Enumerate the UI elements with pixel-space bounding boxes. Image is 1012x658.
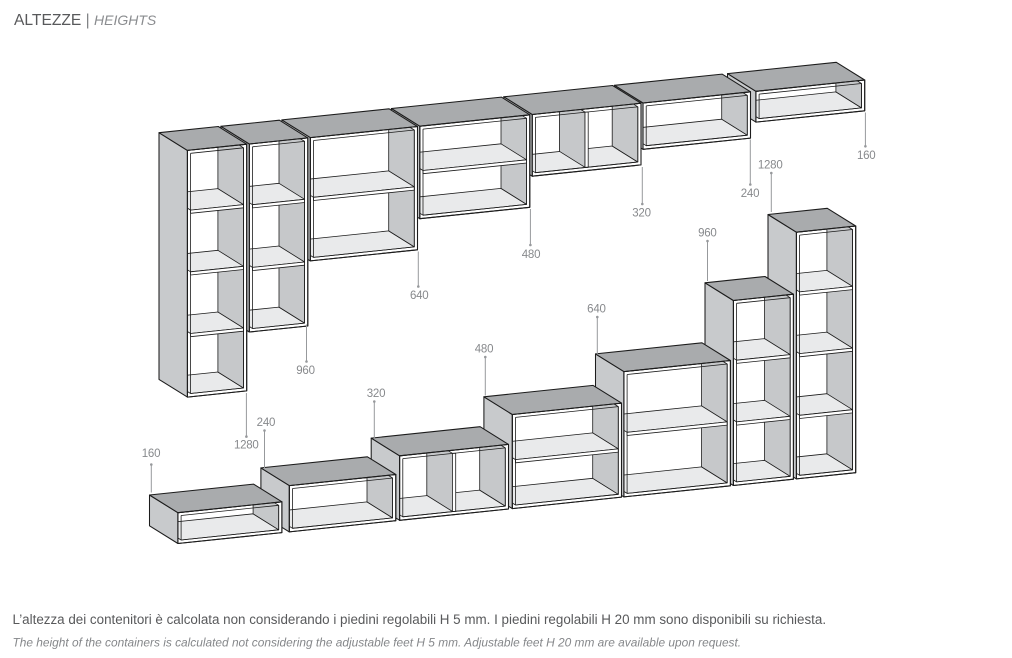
svg-text:240: 240 <box>741 188 759 200</box>
svg-text:480: 480 <box>522 249 540 261</box>
svg-text:160: 160 <box>857 150 875 162</box>
svg-text:The height of the containers i: The height of the containers is calculat… <box>13 636 742 650</box>
svg-text:L’altezza dei contenitori è ca: L’altezza dei contenitori è calcolata no… <box>13 612 827 627</box>
svg-text:640: 640 <box>587 304 605 316</box>
svg-text:960: 960 <box>296 365 314 377</box>
svg-text:640: 640 <box>410 290 428 302</box>
svg-text:960: 960 <box>698 228 716 240</box>
svg-text:240: 240 <box>257 417 275 429</box>
svg-text:1280: 1280 <box>234 440 259 452</box>
svg-text:480: 480 <box>475 344 493 356</box>
svg-text:1280: 1280 <box>758 160 783 172</box>
svg-text:ALTEZZE | HEIGHTS: ALTEZZE | HEIGHTS <box>14 12 157 29</box>
svg-text:320: 320 <box>367 388 385 400</box>
svg-text:160: 160 <box>142 448 160 460</box>
svg-text:320: 320 <box>632 208 650 220</box>
